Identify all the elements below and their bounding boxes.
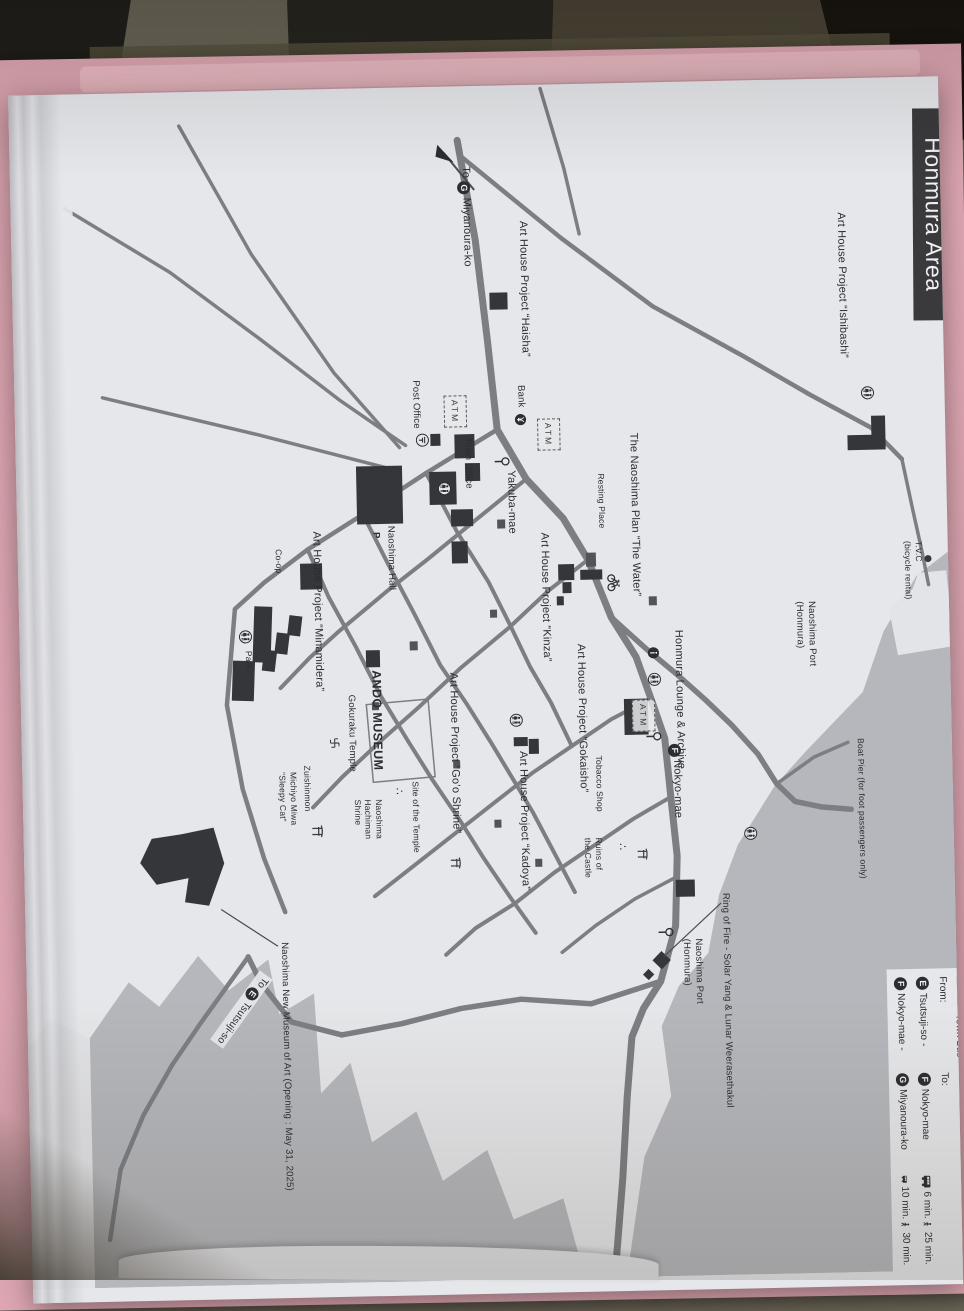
legend-row-to: FNokyo-mae	[918, 1073, 933, 1175]
restroom-icon	[510, 714, 522, 726]
shrine-torii-icon	[638, 849, 648, 860]
bus-icon	[919, 1175, 934, 1189]
legend-to-header: To:	[939, 1072, 952, 1174]
legend-row-to: GMiyanoura-ko	[896, 1073, 911, 1175]
ruins-mark: ∴	[614, 843, 628, 850]
label-site-of-temple: Site of the Temple	[410, 781, 422, 853]
label-tvc-bicycle-rental: T.V.C (bicycle rental)	[902, 541, 924, 600]
atm-sign: ATM	[632, 699, 656, 731]
map-landscape-content: Honmura Area To G Miyanoura-ko Art House…	[8, 76, 963, 1289]
shrine-torii-icon	[451, 858, 461, 869]
restroom-icon	[239, 631, 251, 643]
atm-sign: ATM	[537, 418, 561, 450]
label-town-office: Town Office	[461, 437, 474, 489]
bike-parking-sign	[580, 569, 602, 579]
legend-row-from: FNokyo-mae-	[894, 977, 909, 1073]
restroom-icon	[861, 387, 873, 399]
naoshima-hall-building	[356, 466, 403, 525]
new-museum-building	[139, 827, 225, 907]
label-naoshima-hall: Naoshima Hall	[384, 526, 397, 591]
label-nokyo-mae: F Nokyo-mae	[668, 744, 685, 819]
label-coop: Co-op	[273, 549, 284, 573]
label-yakuba-mae: Yakuba-mae	[503, 470, 518, 534]
legend-row-from: ETsutsuji-so-	[916, 977, 931, 1073]
site-mark: ∴	[391, 788, 405, 795]
bus-icon	[897, 1175, 912, 1184]
stop-badge-f: F	[668, 744, 681, 757]
label-park: Park	[243, 651, 254, 669]
bicycle-icon	[608, 575, 619, 591]
legend-from-header: From:	[937, 976, 950, 1072]
label-naoshima-port-upper: Naoshima Port (Honmura)	[793, 601, 818, 667]
label-ruins-castle: Ruins of the Castle	[583, 837, 605, 878]
park-area	[253, 606, 273, 663]
ando-museum-building	[366, 650, 380, 667]
label-kinza: Art House Project “Kinza”	[537, 532, 553, 661]
label-tobacco-shop: Tobacco Shop	[593, 755, 605, 811]
miyanoura-arrow	[435, 144, 453, 162]
label-kadoya: Art House Project “Kadoya”	[515, 751, 532, 890]
stop-badge-g: G	[457, 181, 470, 194]
label-hachiman-shrine: Naoshima Hachiman Shrine	[352, 799, 385, 840]
post-office-icon	[416, 434, 428, 446]
sea-water	[10, 546, 963, 1290]
map-legend: Town Bus From: To: ETsutsuji-so- FNokyo-…	[887, 968, 964, 1274]
label-gokuraku-temple: Gokuraku Temple	[345, 695, 358, 773]
legend-bus-time: 6 min.	[919, 1175, 935, 1219]
ishibashi-building	[847, 415, 886, 450]
shrine-torii-icon	[312, 826, 322, 838]
label-post-office: Post Office	[409, 380, 422, 429]
legend-bus-time: 10 min.	[897, 1175, 913, 1219]
label-michiyo-sleepy-cat: Michiyo Miwa “Sleepy Cat”	[277, 772, 299, 826]
legend-walk-time: 25 min.	[920, 1219, 935, 1265]
parking-mark: P	[369, 532, 381, 539]
restroom-icon	[438, 483, 450, 495]
paper-map-sheet: Honmura Area To G Miyanoura-ko Art House…	[8, 76, 963, 1303]
label-zuishinmon: Zuishinmon	[302, 766, 314, 812]
restroom-icon	[745, 827, 757, 839]
legend-walk-time: 30 min.	[898, 1219, 913, 1265]
pedestrian-icon	[920, 1219, 934, 1229]
resting-place-hut	[586, 553, 596, 567]
label-resting-place: Resting Place	[596, 473, 608, 528]
temple-manji-icon	[330, 739, 339, 748]
label-to-miyanoura: To G Miyanoura-ko	[457, 166, 474, 267]
label-ando-museum: ANDO MUSEUM	[368, 670, 386, 771]
map-graphics	[8, 76, 963, 1289]
label-haisha: Art House Project “Haisha”	[515, 221, 532, 357]
label-bank: Bank	[514, 385, 526, 408]
atm-sign: ATM	[443, 395, 467, 427]
label-naoshima-port-lower: Naoshima Port (Honmura)	[680, 938, 705, 1004]
pedestrian-icon	[898, 1219, 912, 1229]
restroom-icon	[648, 673, 660, 685]
bank-icon	[515, 414, 526, 425]
bus-stop-icon	[495, 458, 509, 465]
